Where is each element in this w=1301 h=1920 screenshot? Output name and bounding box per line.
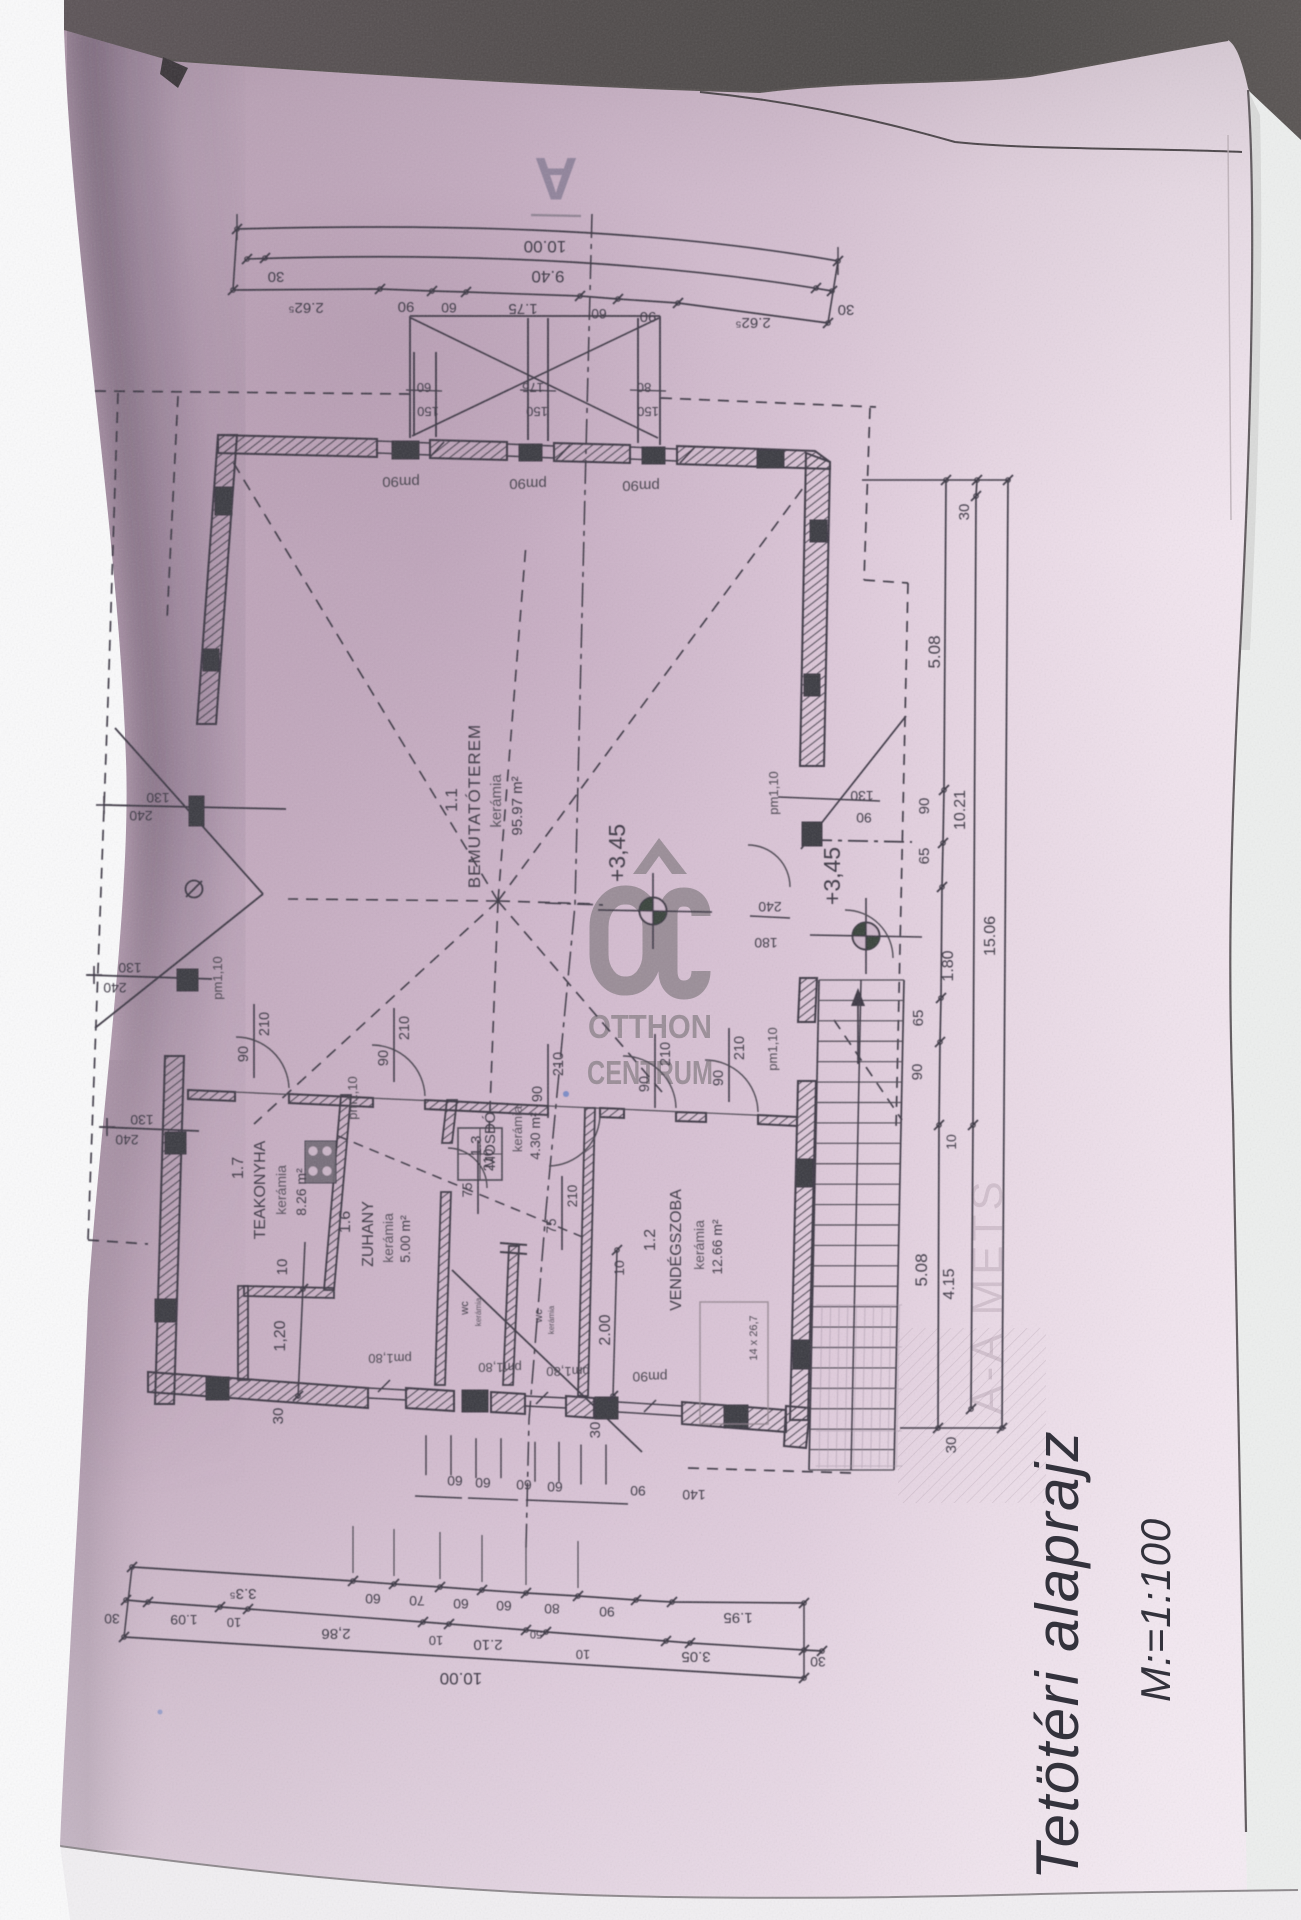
svg-text:Tetötéri alaprajz: Tetötéri alaprajz xyxy=(1024,1430,1091,1880)
svg-text:M:=1:100: M:=1:100 xyxy=(1132,1518,1179,1702)
